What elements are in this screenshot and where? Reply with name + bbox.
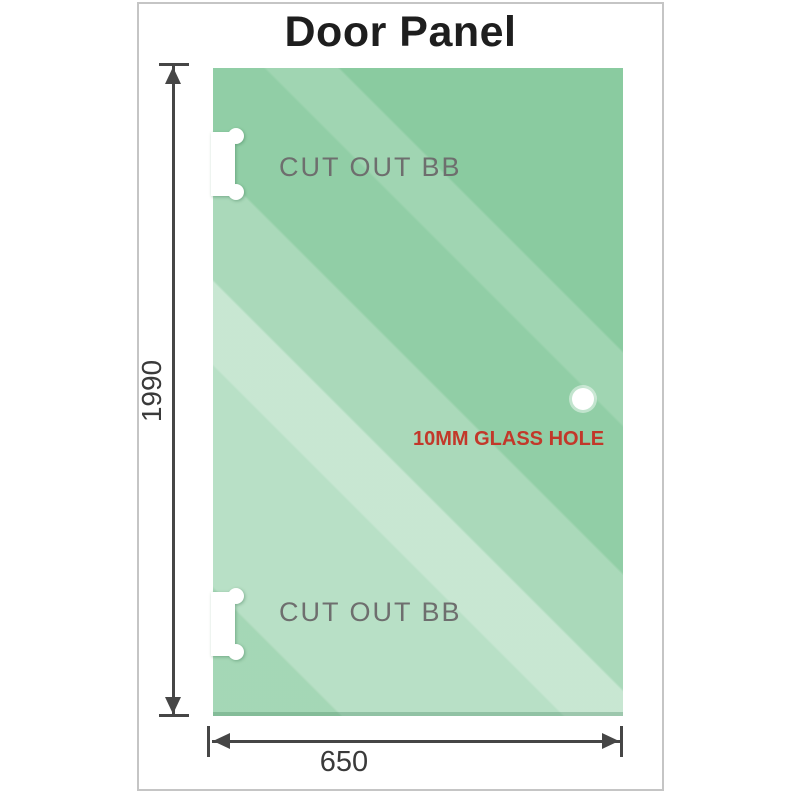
dimension-line-vertical bbox=[172, 66, 175, 716]
page-title: Door Panel bbox=[137, 8, 664, 57]
arrow-up-icon bbox=[165, 67, 181, 84]
dimension-cap-bottom bbox=[159, 714, 189, 717]
glass-panel: CUT OUT BB CUT OUT BB 10MM GLASS HOLE bbox=[213, 68, 623, 716]
cutout-relief-hole bbox=[228, 128, 244, 144]
height-dimension-label: 1990 bbox=[138, 356, 166, 426]
arrow-down-icon bbox=[165, 697, 181, 714]
dimension-tick-right bbox=[620, 726, 623, 757]
hinge-cutout-bottom bbox=[211, 592, 245, 656]
cutout-bottom-label: CUT OUT BB bbox=[279, 597, 462, 628]
arrow-left-icon bbox=[213, 733, 230, 749]
glass-hole bbox=[572, 388, 594, 410]
cutout-relief-hole bbox=[228, 644, 244, 660]
panel-bottom-edge bbox=[213, 712, 623, 716]
glass-hole-label: 10MM GLASS HOLE bbox=[413, 428, 604, 451]
arrow-right-icon bbox=[602, 733, 619, 749]
dimension-tick-left bbox=[207, 726, 210, 757]
door-panel-diagram: Door Panel CUT OUT BB CUT OUT BB 10MM GL… bbox=[0, 0, 800, 800]
width-dimension-label: 650 bbox=[308, 746, 380, 779]
cutout-relief-hole bbox=[228, 184, 244, 200]
cutout-top-label: CUT OUT BB bbox=[279, 152, 462, 183]
cutout-relief-hole bbox=[228, 588, 244, 604]
dimension-line-horizontal bbox=[212, 740, 620, 743]
hinge-cutout-top bbox=[211, 132, 245, 196]
